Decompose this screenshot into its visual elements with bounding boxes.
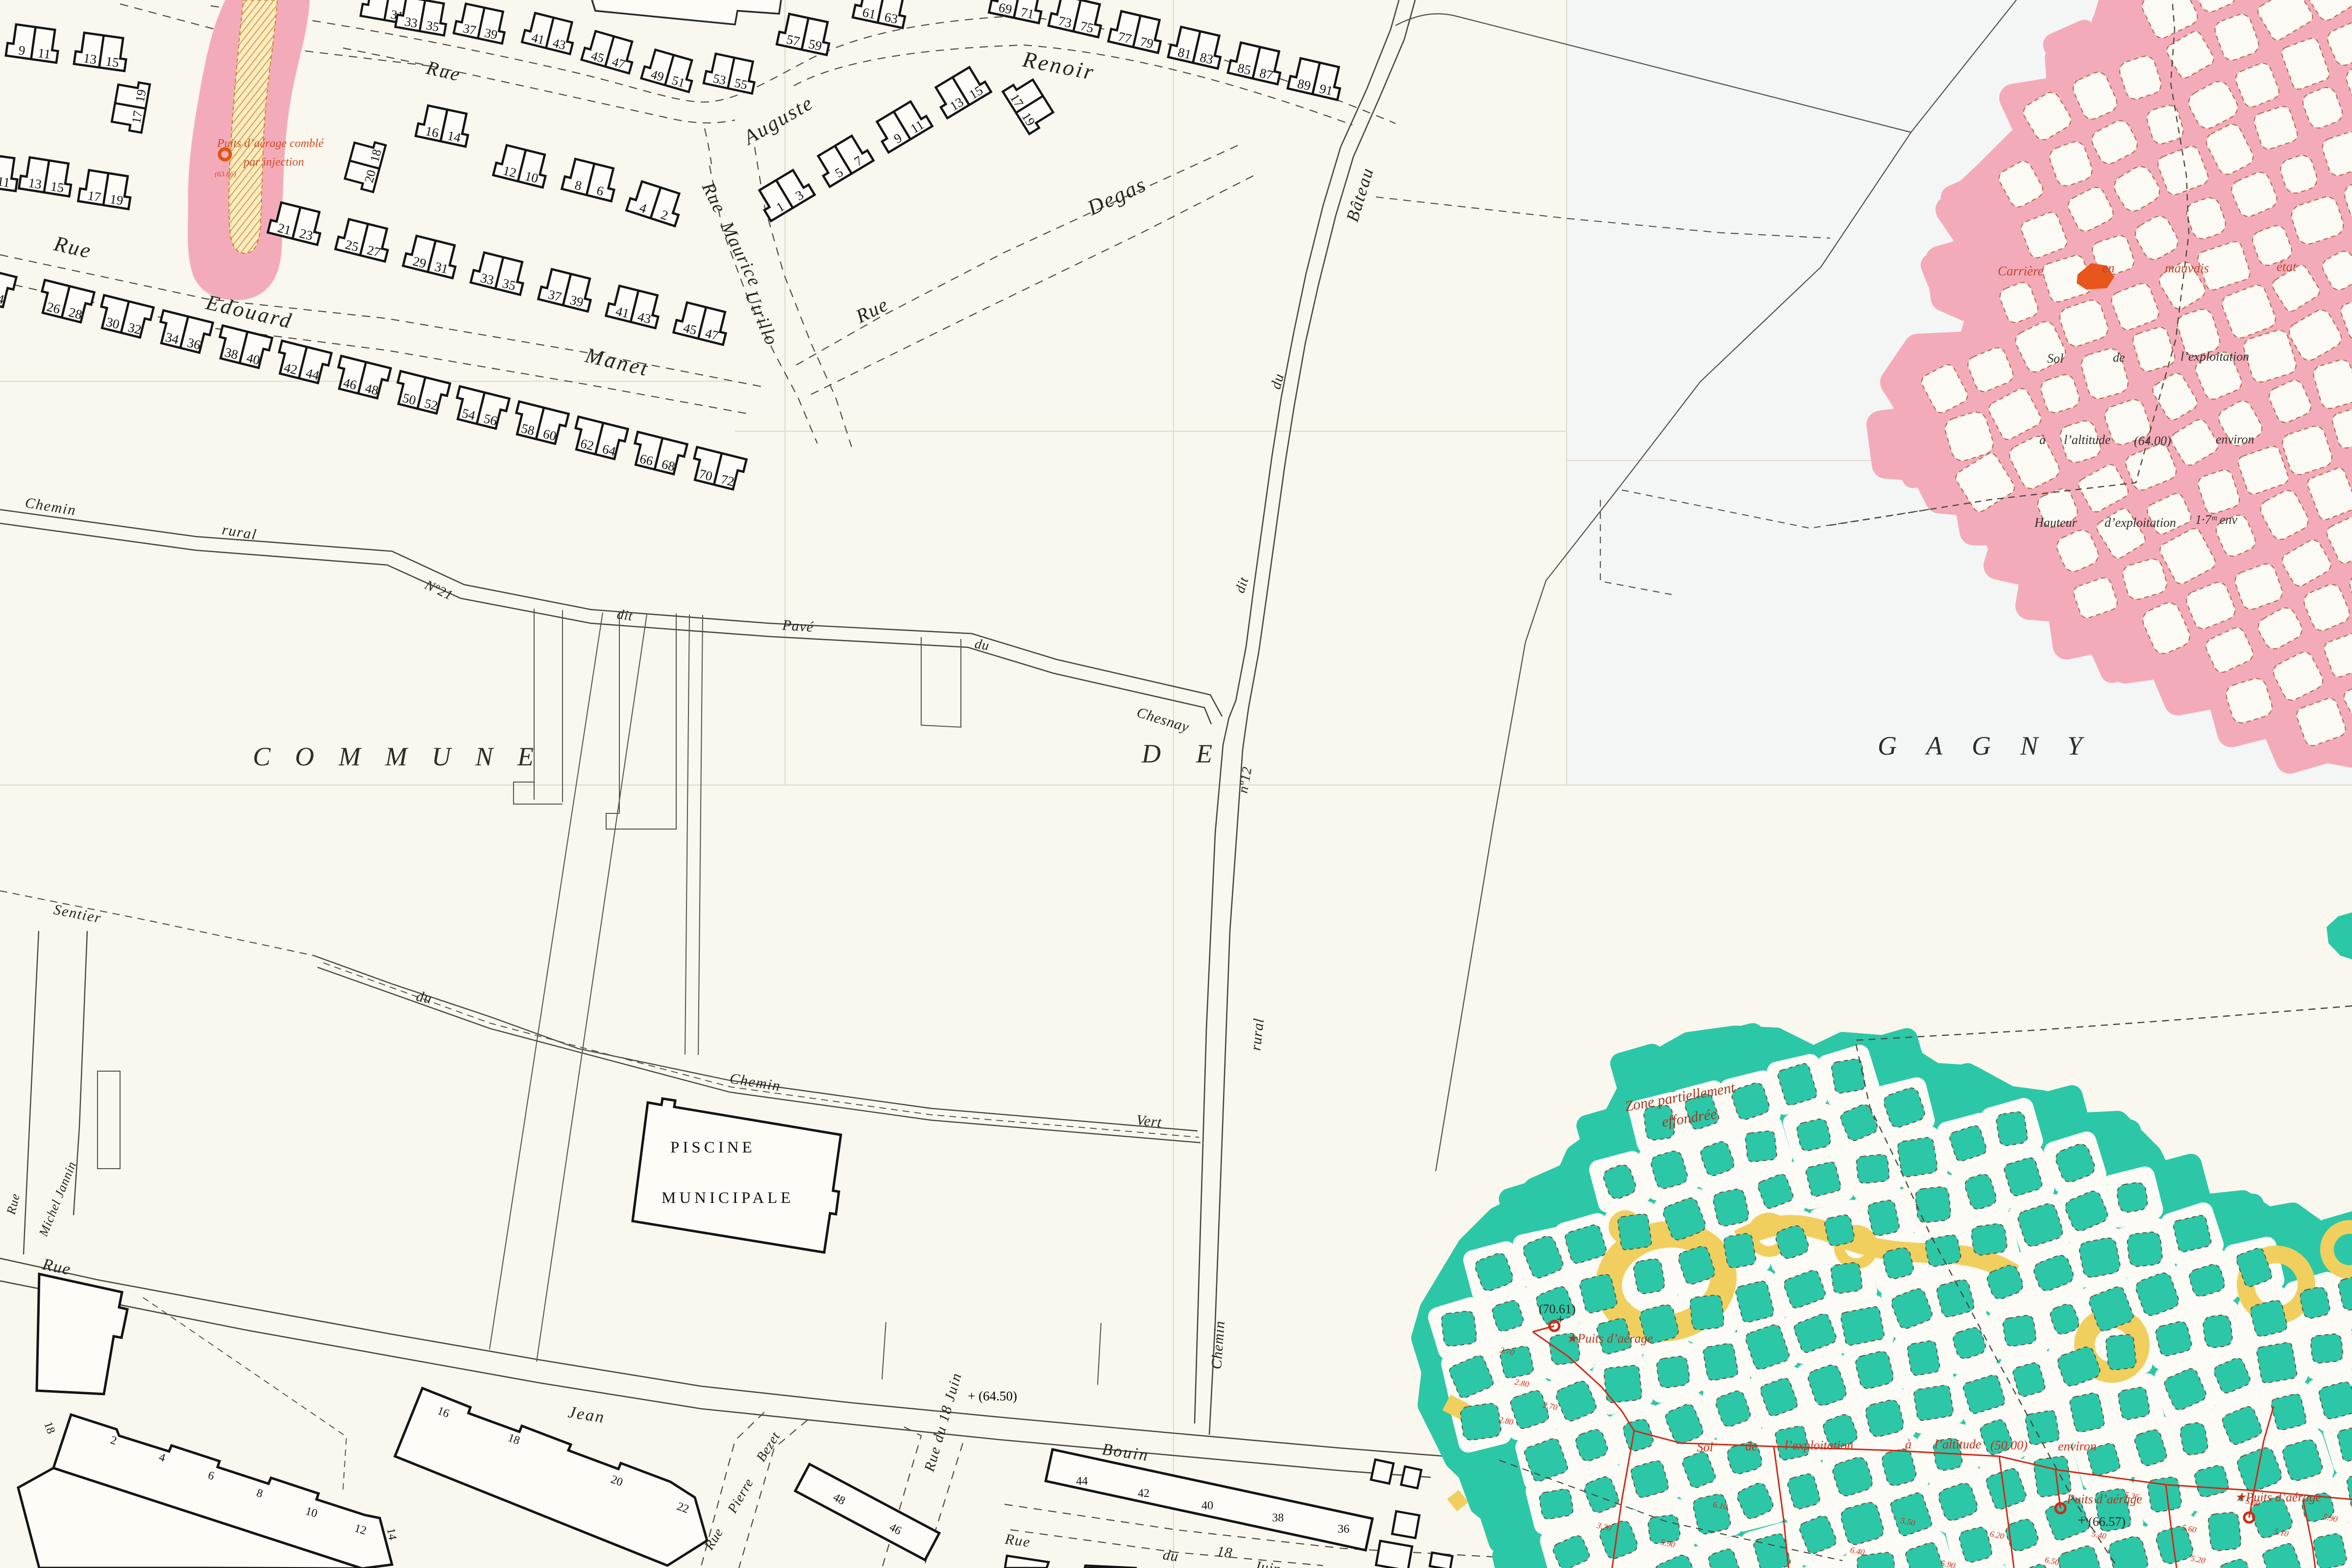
svg-text:15: 15 bbox=[49, 179, 65, 196]
svg-text:environ: environ bbox=[2058, 1439, 2096, 1453]
svg-text:l’exploitation: l’exploitation bbox=[2180, 349, 2249, 364]
svg-text:(63.86): (63.86) bbox=[215, 171, 236, 178]
svg-text:19: 19 bbox=[133, 88, 149, 103]
svg-text:DE: DE bbox=[1141, 739, 1248, 768]
svg-text:11: 11 bbox=[37, 46, 51, 62]
svg-text:l’altitude: l’altitude bbox=[2064, 433, 2110, 447]
svg-text:rural: rural bbox=[1248, 1017, 1267, 1052]
svg-text:★Puits d’aérage: ★Puits d’aérage bbox=[1566, 1331, 1653, 1346]
svg-text:(66.57): (66.57) bbox=[2088, 1515, 2126, 1529]
svg-text:40: 40 bbox=[1201, 1499, 1213, 1512]
svg-text:du: du bbox=[1162, 1546, 1179, 1565]
svg-text:de: de bbox=[2113, 350, 2125, 365]
svg-text:PISCINE: PISCINE bbox=[670, 1139, 756, 1156]
svg-text:COMMUNE: COMMUNE bbox=[253, 742, 558, 771]
svg-text:mauvais: mauvais bbox=[2165, 261, 2209, 275]
svg-text:38: 38 bbox=[1272, 1512, 1284, 1524]
svg-text:1·7ᵐ env: 1·7ᵐ env bbox=[2195, 513, 2237, 527]
svg-text:Chemin: Chemin bbox=[1208, 1320, 1228, 1370]
svg-text:en: en bbox=[2102, 261, 2114, 275]
svg-text:GAGNY: GAGNY bbox=[1878, 731, 2111, 760]
svg-text:13: 13 bbox=[27, 175, 43, 192]
svg-text:par injection: par injection bbox=[243, 156, 304, 169]
svg-text:★Puits d’aérage: ★Puits d’aérage bbox=[2234, 1490, 2321, 1504]
svg-text:14: 14 bbox=[384, 1527, 399, 1541]
svg-text:17: 17 bbox=[87, 188, 102, 205]
svg-text:19: 19 bbox=[109, 192, 124, 208]
svg-text:Pavé: Pavé bbox=[782, 617, 815, 635]
svg-text:44: 44 bbox=[1076, 1475, 1088, 1488]
svg-text:18: 18 bbox=[1216, 1543, 1233, 1561]
svg-text:à: à bbox=[2039, 433, 2046, 447]
svg-text:15: 15 bbox=[105, 54, 120, 70]
svg-text:du: du bbox=[974, 636, 991, 654]
svg-text:Puits d’aérage: Puits d’aérage bbox=[2066, 1492, 2142, 1506]
svg-text:17: 17 bbox=[129, 110, 145, 125]
svg-text:Carrière: Carrière bbox=[1998, 264, 2044, 278]
svg-text:environ: environ bbox=[2216, 432, 2254, 446]
svg-text:(64.00): (64.00) bbox=[2134, 434, 2171, 448]
svg-text:42: 42 bbox=[1138, 1487, 1150, 1500]
svg-text:(50.00): (50.00) bbox=[1990, 1438, 2028, 1452]
svg-text:de: de bbox=[1745, 1439, 1758, 1453]
svg-text:Puits d’aérage comblé: Puits d’aérage comblé bbox=[217, 137, 324, 150]
svg-text:Hauteur: Hauteur bbox=[2034, 515, 2078, 530]
svg-text:33: 33 bbox=[403, 14, 418, 30]
svg-text:35: 35 bbox=[425, 18, 440, 34]
svg-text:+ (64.50): + (64.50) bbox=[968, 1389, 1017, 1403]
svg-text:du: du bbox=[415, 988, 434, 1006]
svg-text:13: 13 bbox=[82, 50, 98, 67]
svg-text:l’exploitation: l’exploitation bbox=[1785, 1438, 1853, 1452]
svg-text:dit: dit bbox=[616, 607, 634, 624]
svg-text:Vert: Vert bbox=[1135, 1112, 1162, 1130]
svg-text:à: à bbox=[1905, 1437, 1911, 1451]
svg-text:Sol: Sol bbox=[2047, 351, 2063, 366]
svg-text:état: état bbox=[2277, 259, 2297, 274]
svg-text:+: + bbox=[2078, 1512, 2086, 1528]
svg-text:36: 36 bbox=[1338, 1523, 1349, 1536]
svg-text:l’altitude: l’altitude bbox=[1935, 1437, 1981, 1451]
svg-text:d’exploitation: d’exploitation bbox=[2105, 515, 2176, 530]
svg-text:MUNICIPALE: MUNICIPALE bbox=[661, 1189, 794, 1207]
svg-text:+: + bbox=[1556, 1311, 1565, 1327]
svg-text:Sol: Sol bbox=[1697, 1440, 1713, 1454]
